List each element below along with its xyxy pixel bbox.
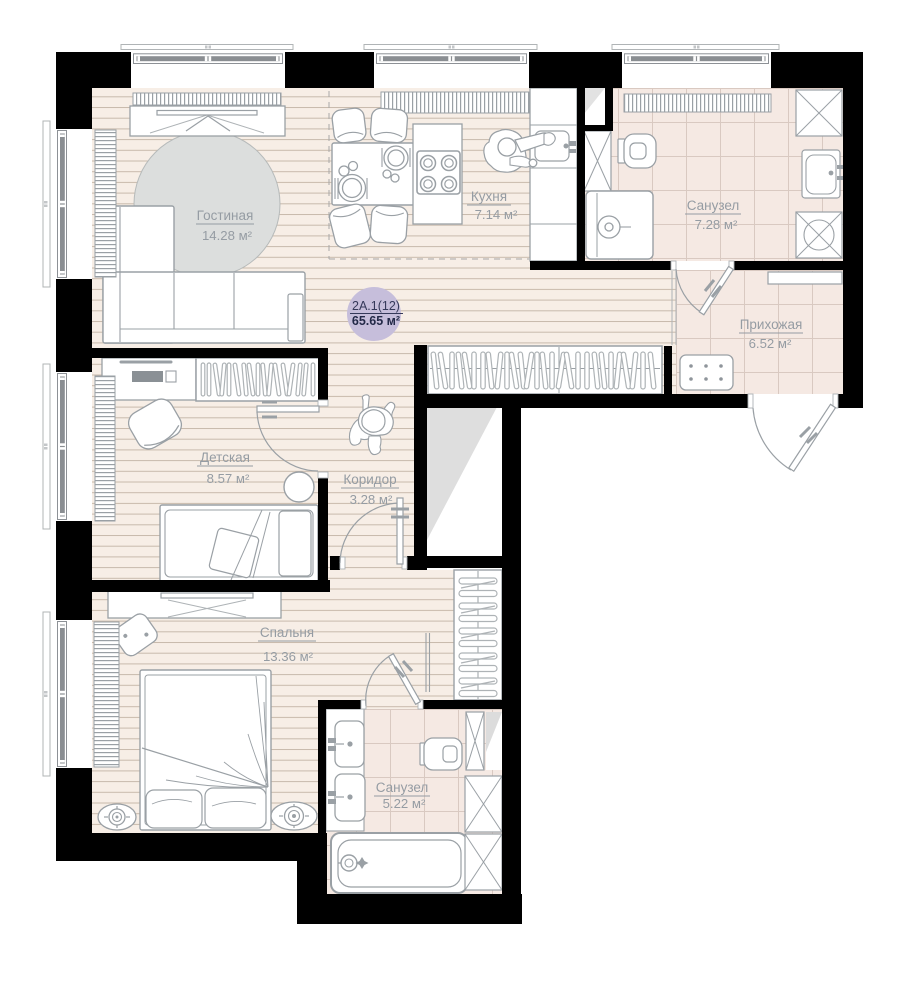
svg-text:Детская: Детская [200,450,250,465]
svg-text:Спальня: Спальня [260,625,314,640]
svg-text:13.36 м²: 13.36 м² [263,649,314,664]
svg-text:14.28 м²: 14.28 м² [202,228,253,243]
svg-text:65.65 м²: 65.65 м² [352,314,400,328]
svg-text:Гостиная: Гостиная [197,208,254,223]
svg-text:8.57 м²: 8.57 м² [207,471,250,486]
svg-text:7.28 м²: 7.28 м² [695,217,738,232]
svg-text:7.14 м²: 7.14 м² [475,207,518,222]
svg-text:Санузел: Санузел [687,198,740,213]
svg-text:5.22 м²: 5.22 м² [383,796,426,811]
svg-text:Коридор: Коридор [343,472,396,487]
svg-text:2А.1(12): 2А.1(12) [352,299,400,313]
svg-text:Кухня: Кухня [471,189,507,204]
svg-text:Санузел: Санузел [376,780,429,795]
svg-text:Прихожая: Прихожая [740,317,803,332]
svg-text:6.52 м²: 6.52 м² [749,336,792,351]
